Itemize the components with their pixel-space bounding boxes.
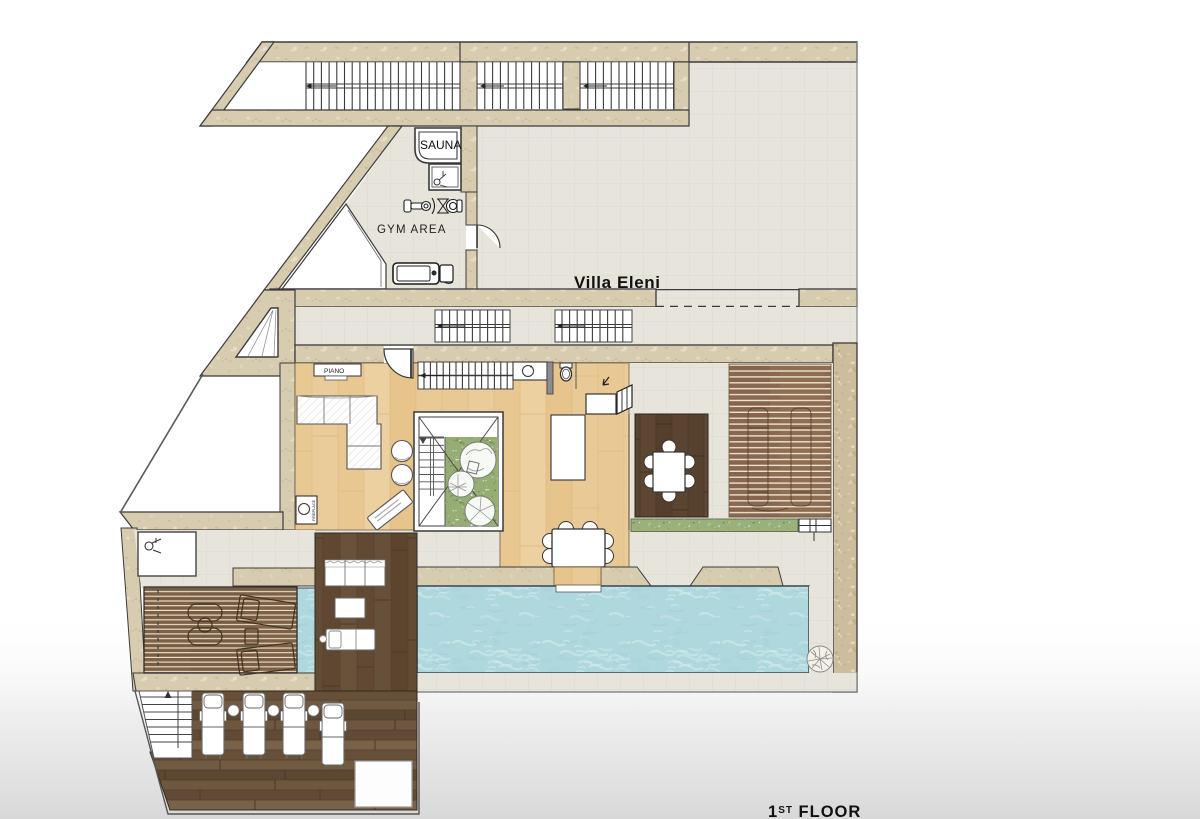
svg-text:PIANO: PIANO (324, 368, 344, 375)
svg-text:FIREPLACE: FIREPLACE (312, 499, 316, 521)
svg-text:SAUNA: SAUNA (420, 138, 461, 152)
svg-text:GYM AREA: GYM AREA (377, 224, 447, 236)
